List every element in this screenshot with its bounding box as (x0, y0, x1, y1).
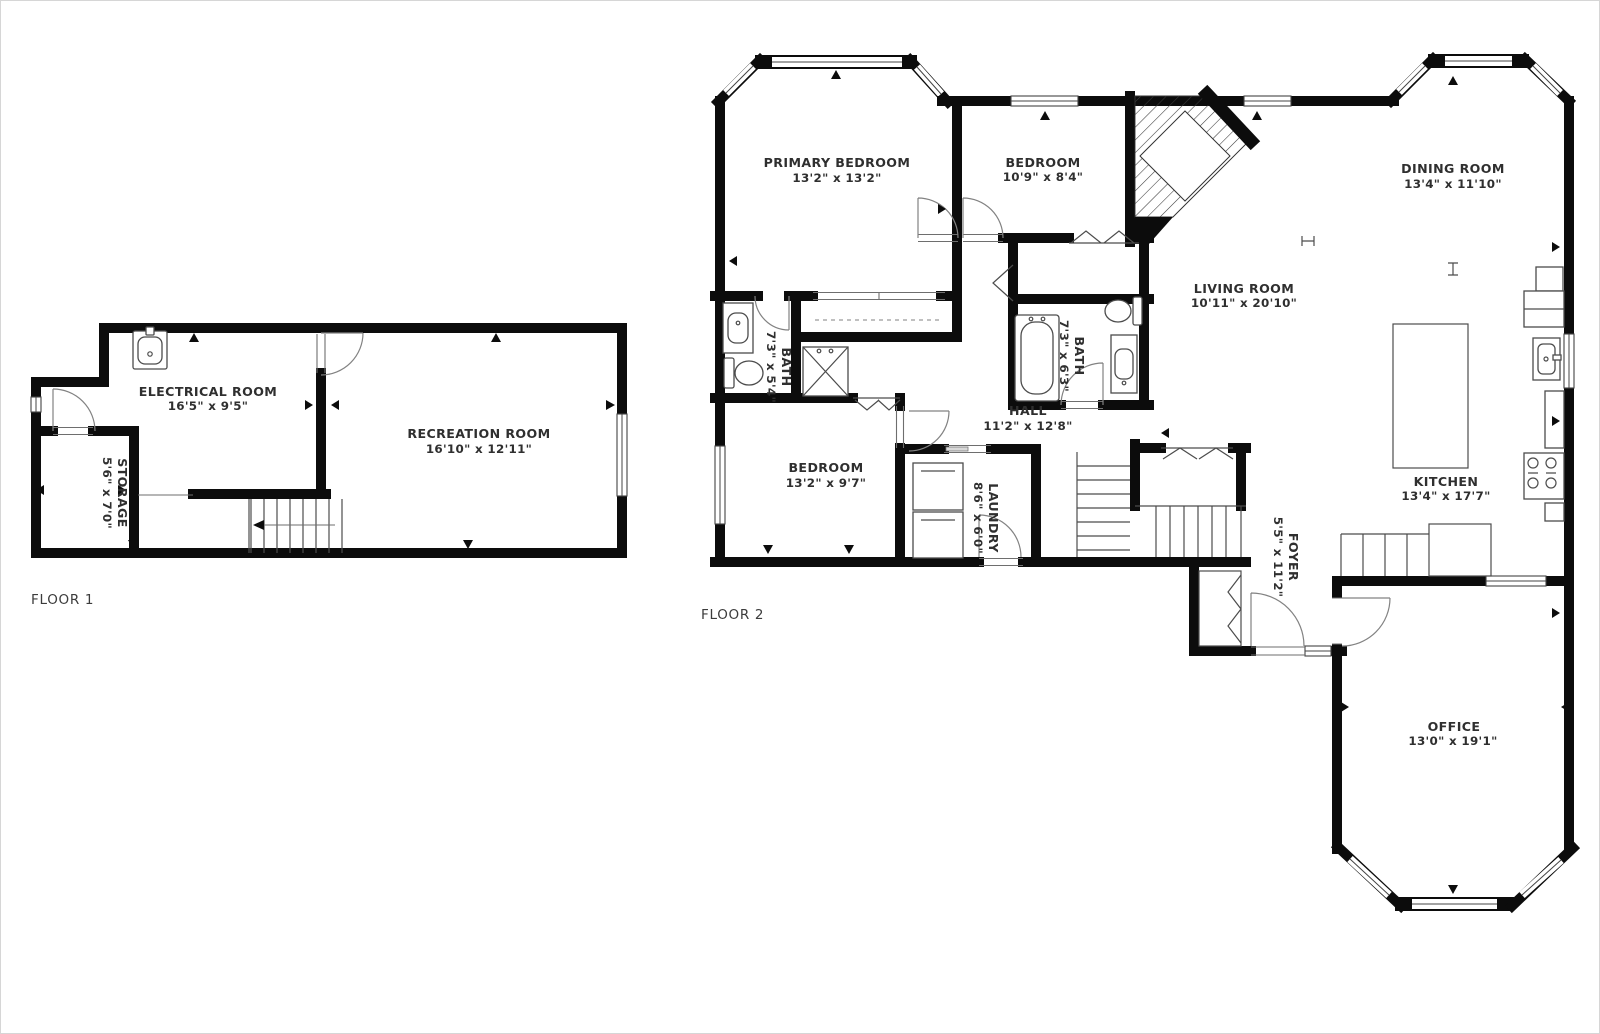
door-arc-electrical (321, 333, 363, 375)
room-name: PRIMARY BEDROOM (764, 155, 911, 170)
room-dims: 10'9" x 8'4" (1003, 170, 1084, 184)
room-name: KITCHEN (1414, 474, 1479, 489)
pocket-door (946, 447, 968, 451)
room-name: BATH (779, 347, 794, 386)
door-arc-entry (1251, 593, 1304, 646)
wardrobe-closet (813, 292, 945, 320)
room-dims: 10'11" x 20'10" (1191, 296, 1297, 310)
washer-icon (913, 463, 963, 510)
room-label-primary: PRIMARY BEDROOM 13'2" x 13'2" (764, 155, 911, 185)
door-arc-bedroom2 (963, 198, 1003, 238)
floorplan-drawing: ELECTRICAL ROOM 16'5" x 9'5" RECREATION … (1, 1, 1600, 1034)
door-arc-bath1 (755, 296, 789, 330)
room-label-kitchen: KITCHEN 13'4" x 17'7" (1401, 474, 1490, 503)
kitchen-fixtures (1524, 267, 1564, 521)
room-name: BATH (1072, 336, 1087, 375)
room-dims: 16'5" x 9'5" (168, 399, 249, 413)
stove-icon (1524, 453, 1564, 499)
room-name: STORAGE (115, 458, 130, 528)
room-dims: 13'4" x 11'10" (1404, 177, 1502, 191)
floor1-label: FLOOR 1 (31, 592, 94, 608)
door-arc-office (1342, 598, 1390, 646)
toilet-icon (724, 358, 763, 388)
room-dims: 11'2" x 12'8" (983, 419, 1072, 433)
room-name: ELECTRICAL ROOM (139, 384, 278, 399)
room-dims: 16'10" x 12'11" (426, 442, 532, 456)
room-label-electrical: ELECTRICAL ROOM 16'5" x 9'5" (139, 384, 278, 413)
room-dims: 5'5" x 11'2" (1271, 517, 1285, 598)
room-name: OFFICE (1428, 719, 1481, 734)
room-name: RECREATION ROOM (407, 426, 550, 441)
room-dims: 13'2" x 13'2" (792, 171, 881, 185)
room-name: HALL (1009, 403, 1047, 418)
room-dims: 8'6" x 6'0" (971, 482, 985, 554)
room-name: FOYER (1286, 533, 1301, 581)
room-label-office: OFFICE 13'0" x 19'1" (1408, 719, 1497, 748)
sink-icon (1111, 335, 1137, 393)
dryer-icon (913, 512, 963, 558)
counter (1536, 267, 1563, 291)
room-dims: 7'3" x 5'4" (764, 331, 778, 403)
room-label-bedroom3: BEDROOM 13'2" x 9'7" (786, 460, 867, 490)
room-name: BEDROOM (1005, 155, 1080, 170)
room-name: DINING ROOM (1401, 161, 1505, 176)
room-label-bath1: BATH 7'3" x 5'4" (764, 331, 794, 403)
room-name: BEDROOM (788, 460, 863, 475)
room-label-laundry: LAUNDRY 8'6" x 6'0" (971, 482, 1001, 554)
shower-icon (803, 347, 848, 396)
entry-closet (1199, 571, 1241, 646)
stairs-icon-hall (1077, 452, 1246, 557)
floor1-plan: ELECTRICAL ROOM 16'5" x 9'5" RECREATION … (31, 327, 627, 608)
bathtub-icon (1015, 315, 1059, 401)
room-dims: 7'3" x 6'3" (1057, 320, 1071, 392)
floor2-label: FLOOR 2 (701, 607, 764, 623)
room-name: LIVING ROOM (1194, 281, 1294, 296)
counter (1545, 503, 1564, 521)
fireplace-icon (1135, 94, 1251, 244)
room-label-foyer: FOYER 5'5" x 11'2" (1271, 517, 1301, 598)
room-dims: 13'2" x 9'7" (786, 476, 867, 490)
room-label-living: LIVING ROOM 10'11" x 20'10" (1191, 281, 1297, 310)
floorplan-canvas: ELECTRICAL ROOM 16'5" x 9'5" RECREATION … (0, 0, 1600, 1034)
floor2-plan: PRIMARY BEDROOM 13'2" x 13'2" BEDROOM 10… (701, 54, 1574, 911)
door-arc-storage (53, 389, 95, 431)
stairs-icon-kitchen-steps (1341, 524, 1491, 576)
room-label-storage: STORAGE 5'6" x 7'0" (100, 457, 130, 529)
room-label-bath2: BATH 7'3" x 6'3" (1057, 320, 1087, 392)
room-label-recreation: RECREATION ROOM 16'10" x 12'11" (407, 426, 550, 456)
sink-icon (723, 303, 753, 353)
laundry-fixtures (913, 463, 963, 558)
room-dims: 5'6" x 7'0" (100, 457, 114, 529)
sink-icon-floor1 (133, 327, 167, 369)
kitchen-island (1393, 324, 1468, 468)
room-label-bedroom2: BEDROOM 10'9" x 8'4" (1003, 155, 1084, 184)
room-label-dining: DINING ROOM 13'4" x 11'10" (1401, 161, 1505, 191)
room-name: LAUNDRY (986, 483, 1001, 553)
room-dims: 13'4" x 17'7" (1401, 489, 1490, 503)
room-dims: 13'0" x 19'1" (1408, 734, 1497, 748)
dimension-mark (1302, 236, 1458, 275)
stairs-icon-floor1 (249, 499, 342, 553)
